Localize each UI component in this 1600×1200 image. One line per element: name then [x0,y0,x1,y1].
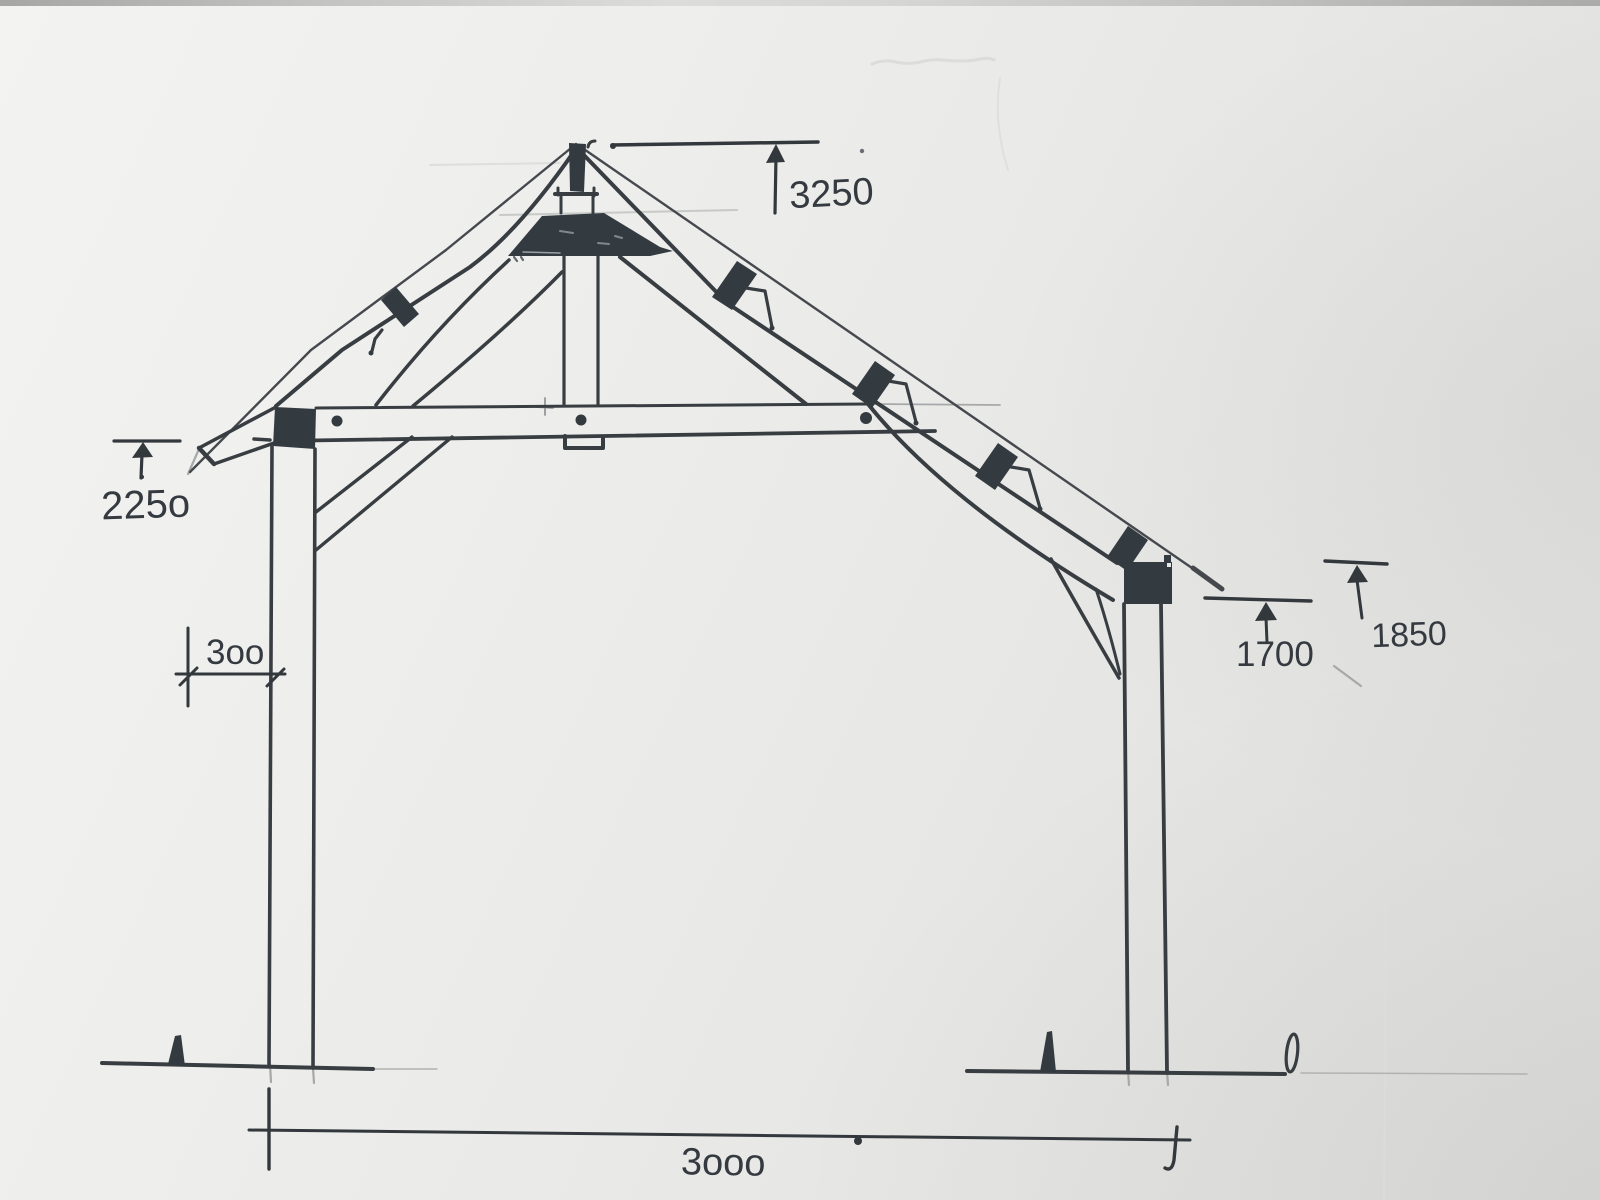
svg-text:225o: 225o [100,481,190,528]
svg-text:3250: 3250 [788,171,875,217]
svg-text:3ooo: 3ooo [681,1141,766,1184]
svg-text:1700: 1700 [1236,635,1314,674]
svg-text:3oo: 3oo [206,633,264,672]
svg-text:1850: 1850 [1371,615,1448,656]
